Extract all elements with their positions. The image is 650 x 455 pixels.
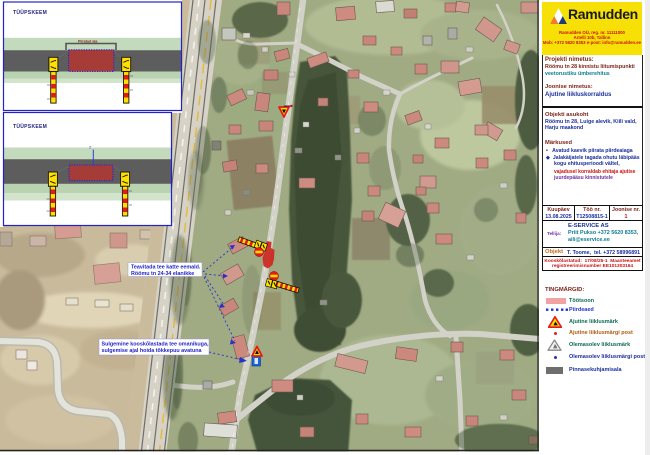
svg-text:Röömu tn 24-34 elanikke: Röömu tn 24-34 elanikke bbox=[131, 271, 194, 277]
svg-text:Piiratud ala: Piiratud ala bbox=[78, 39, 98, 43]
svg-text:TÜÜPSKEEM: TÜÜPSKEEM bbox=[13, 9, 47, 16]
svg-text:Teavitada tee katte eemald.: Teavitada tee katte eemald. bbox=[131, 265, 201, 271]
svg-text:TÜÜPSKEEM: TÜÜPSKEEM bbox=[13, 123, 47, 130]
svg-text:sulgemise ajal hoida tõkkepuu: sulgemise ajal hoida tõkkepuu avatuna bbox=[102, 348, 203, 354]
svg-text:Sulgemine kooskõlastada tee om: Sulgemine kooskõlastada tee omanikuga, bbox=[102, 342, 209, 348]
